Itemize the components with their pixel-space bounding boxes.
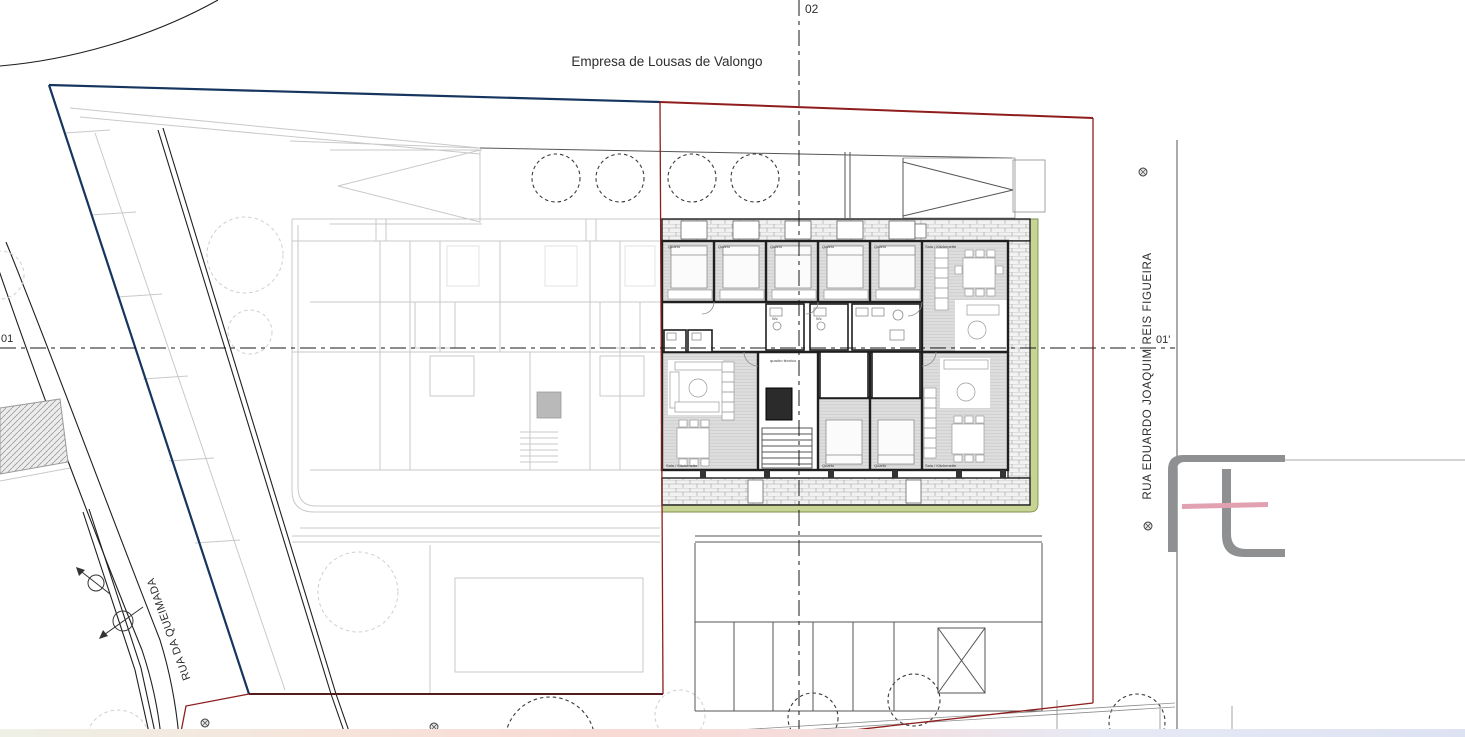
section-marker-01: 01 (1, 333, 13, 345)
room-label: Quarto (822, 463, 835, 468)
room-label: Quarto (718, 244, 731, 249)
skylight-x-box (938, 628, 985, 693)
site-plan-drawing: Quarto Quarto Quarto Quarto Quarto Sala … (0, 0, 1465, 737)
room-label: Sala / Kitchenette (925, 244, 957, 249)
main-building-plan: Quarto Quarto Quarto Quarto Quarto Sala … (662, 219, 1030, 505)
west-boundary-blue (49, 85, 249, 694)
room-label: Quarto (668, 244, 681, 249)
street-name-right: RUA EDUARDO JOAQUIM REIS FIGUEIRA (1142, 252, 1154, 499)
beds-upper (668, 246, 920, 299)
room-label: Quarto (874, 244, 887, 249)
left-building-faded (290, 141, 662, 528)
balcony-posts (700, 470, 1006, 478)
section-marker-01-prime: 01' (1156, 334, 1170, 346)
room-label: Wc (772, 316, 778, 321)
street-name-left: RUA DA QUEIMADA (145, 576, 193, 682)
north-boundary-red (660, 102, 1093, 118)
north-planter-band (480, 148, 1045, 218)
site-plan-canvas: Quarto Quarto Quarto Quarto Quarto Sala … (0, 0, 1465, 737)
bottom-edge-strip (0, 729, 1465, 737)
courtyard-parking (505, 536, 1165, 737)
room-label: Wc (816, 316, 822, 321)
room-label: Quarto (822, 244, 835, 249)
room-label: Sala / Kitchenette (666, 463, 698, 468)
ft-logo (1168, 455, 1285, 557)
room-label: Quarto (874, 463, 887, 468)
pool-area-faded (292, 536, 660, 694)
tree-symbol (0, 217, 705, 737)
existing-building-hatched (0, 399, 70, 481)
room-label: quadro técnico (770, 358, 797, 363)
room-label: Quarto (770, 244, 783, 249)
north-boundary-blue (49, 85, 660, 102)
neighbor-parcel-title: Empresa de Lousas de Valongo (571, 54, 762, 69)
logo-letter-t (1222, 469, 1285, 557)
section-marker-02: 02 (805, 2, 819, 16)
logo-cross-bar (1182, 502, 1268, 509)
roadside-parking-strip (65, 108, 480, 690)
room-label: Sala / Kitchenette (925, 463, 957, 468)
